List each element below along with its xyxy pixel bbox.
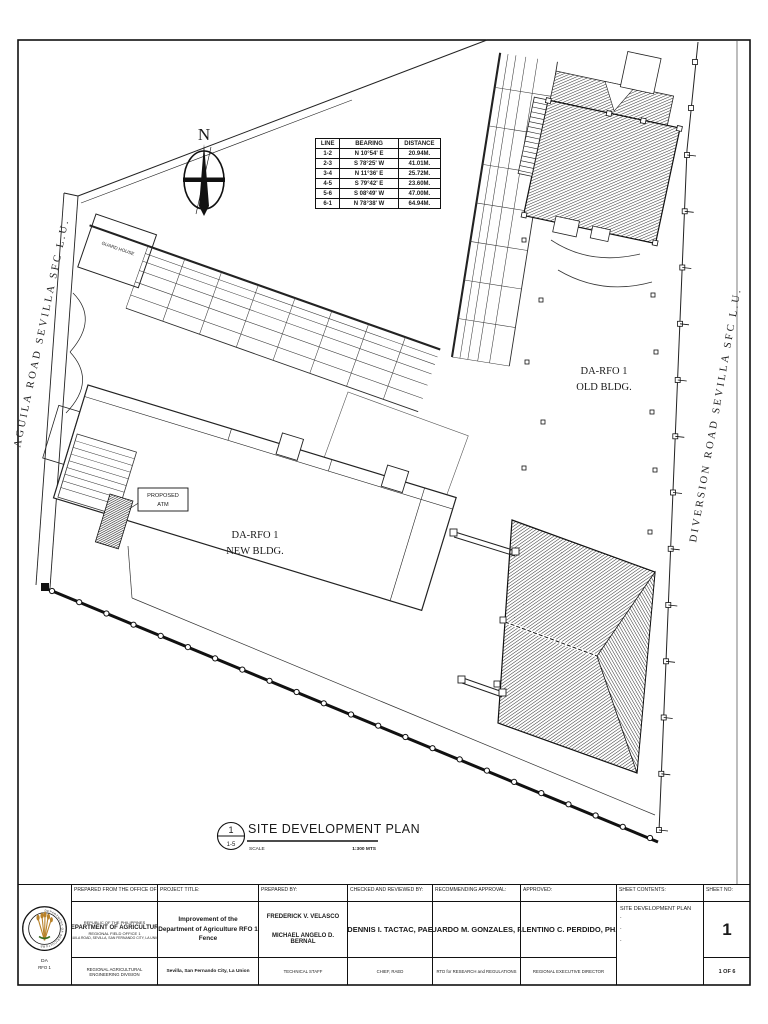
title-block: DEPARTMENT OF AGRICULTURE DA RFO 1 PREPA… [18, 884, 750, 985]
sheet-contents-bullet: . [620, 912, 622, 923]
gate-swing-arc [70, 293, 85, 352]
scale-value: 1:300 MTS [352, 846, 377, 852]
sheet-total: 1 OF 6 [704, 957, 750, 985]
project-line3: Fence [199, 934, 217, 944]
recommending-label: RECOMMENDING APPROVAL: [433, 885, 520, 902]
checked-name: DENNIS I. TACTAC, PAE [347, 925, 432, 934]
prepared-name-2: MICHAEL ANGELO D. BERNAL [259, 933, 347, 945]
bearing-table: LINEBEARINGDISTANCE1-2N 10°54' E20.94M.2… [315, 138, 441, 209]
sheet-no-cell: SHEET NO: 1 1 OF 6 [703, 885, 750, 985]
old-building [508, 34, 696, 253]
office-address: AGUILA ROAD, SEVILLA, SAN FERNANDO CITY,… [71, 936, 157, 940]
recommending-cell: RECOMMENDING APPROVAL: EDUARDO M. GONZAL… [432, 885, 520, 985]
old-bldg-label-2: OLD BLDG. [576, 382, 631, 393]
old-bldg-label-1: DA-RFO 1 [581, 366, 628, 377]
checked-cell: CHECKED AND REVIEWED BY: DENNIS I. TACTA… [347, 885, 432, 985]
atm-callout-line2: ATM [157, 502, 169, 508]
project-title-label: PROJECT TITLE: [158, 885, 258, 902]
sheet-contents-bullet: . [620, 923, 622, 934]
logo-cell: DEPARTMENT OF AGRICULTURE DA RFO 1 [18, 885, 71, 985]
prepared-name-1: FREDERICK V. VELASCO [267, 914, 339, 920]
checked-position: CHIEF, RAED [348, 957, 432, 985]
sheet-number: 1 [722, 920, 731, 940]
new-building [32, 368, 459, 610]
hip-roof-building [494, 520, 655, 773]
project-location: Sevilla, San Fernando City, La Union [158, 957, 258, 985]
drawing-title: 1 1-5 SITE DEVELOPMENT PLAN SCALE 1:300 … [218, 822, 421, 852]
da-logo: DEPARTMENT OF AGRICULTURE DA RFO 1 [18, 885, 71, 985]
sheet-contents-cell: SHEET CONTENTS: SITE DEVELOPMENT PLAN . … [616, 885, 703, 985]
plan-title: SITE DEVELOPMENT PLAN [248, 822, 420, 836]
office-cell: PREPARED FROM THE OFFICE OF: REPUBLIC OF… [71, 885, 157, 985]
office-division: REGIONAL AGRICULTURAL ENGINEERING DIVISI… [72, 957, 157, 985]
project-line1: Improvement of the [178, 915, 237, 925]
traverse-table: LINEBEARINGDISTANCE1-2N 10°54' E20.94M.2… [315, 138, 441, 209]
atm-callout-line1: PROPOSED [147, 493, 179, 499]
atm-callout: PROPOSED ATM [129, 488, 188, 511]
checked-label: CHECKED AND REVIEWED BY: [348, 885, 432, 902]
recommending-name: EDUARDO M. GONZALES, PAE [432, 925, 520, 934]
detail-ref: 1-5 [227, 842, 236, 848]
prepared-by-label: PREPARED BY: [259, 885, 347, 902]
approved-label: APPROVED: [521, 885, 616, 902]
north-arrow: N [183, 125, 225, 216]
sheet-contents-bullet: . [620, 935, 622, 946]
detail-number: 1 [228, 825, 233, 835]
approved-name: VALENTINO C. PERDIDO, PH.D. [520, 925, 616, 934]
old-building-canopy-paths [551, 240, 652, 287]
project-title-cell: PROJECT TITLE: Improvement of the Depart… [157, 885, 258, 985]
recommending-position: RTD for RESEARCH and REGULATIONS [433, 957, 520, 985]
office-label: PREPARED FROM THE OFFICE OF: [72, 885, 157, 902]
logo-caption2: RFO 1 [38, 965, 51, 970]
prepared-by-cell: PREPARED BY: FREDERICK V. VELASCO MICHAE… [258, 885, 347, 985]
approved-cell: APPROVED: VALENTINO C. PERDIDO, PH.D. RE… [520, 885, 616, 985]
sheet-no-label: SHEET NO: [704, 885, 750, 902]
sheet-contents-label: SHEET CONTENTS: [617, 885, 703, 902]
approved-position: REGIONAL EXECUTIVE DIRECTOR [521, 957, 616, 985]
guard-house: GUARD HOUSE [78, 214, 157, 288]
logo-caption1: DA [41, 958, 49, 964]
gate-swing-arc [66, 352, 83, 413]
north-label: N [198, 125, 210, 144]
prepared-position: TECHNICAL STAFF [259, 957, 347, 985]
sheet-contents-text: SITE DEVELOPMENT PLAN [620, 906, 691, 912]
new-bldg-label-1: DA-RFO 1 [232, 530, 279, 541]
new-bldg-label-2: NEW BLDG. [226, 546, 284, 557]
project-line2: Department of Agriculture RFO 1 [158, 925, 258, 935]
scale-label: SCALE [249, 846, 265, 852]
